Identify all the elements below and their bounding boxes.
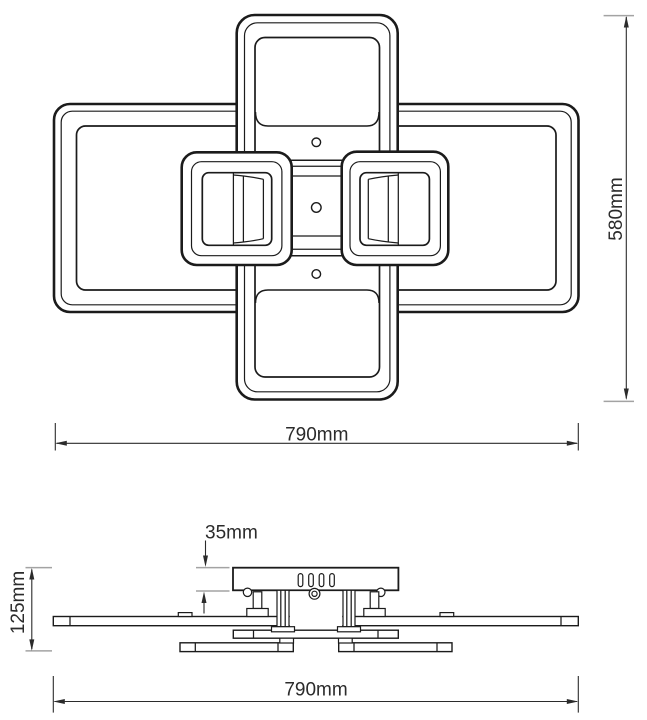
main-bar-tab-right [440, 613, 454, 617]
side-view [53, 568, 578, 652]
plate-foot-right [339, 638, 353, 643]
canopy-vent-slot [298, 574, 303, 587]
technical-drawing: 580mm 790mm 35mm 125mm 790mm [0, 0, 647, 720]
mounting-hole-center [312, 203, 322, 213]
dimension-label-overall-depth: 125mm [8, 571, 29, 634]
plate-foot-left [280, 638, 294, 643]
bolt-center-inner [312, 591, 317, 596]
bottom-bar-right [339, 643, 452, 652]
canopy-vent-slot [330, 574, 335, 587]
arrowhead-down-icon [624, 389, 629, 401]
arrowhead-left-icon [53, 699, 65, 704]
left-square-inner-edge [202, 173, 271, 246]
right-square-frame [342, 152, 449, 265]
dimension-overall-height: 580mm [604, 16, 634, 402]
left-square-frame [182, 152, 292, 265]
arrowhead-up-icon [202, 592, 207, 604]
arrowhead-right-icon [567, 441, 579, 446]
arrowhead-up-icon [29, 568, 34, 580]
mounting-hole-bottom [312, 270, 321, 279]
middle-plate [233, 630, 398, 638]
canopy-vent-slot [319, 574, 324, 587]
dimension-top-width: 790mm [55, 423, 578, 451]
mounting-hole-top [312, 138, 321, 147]
dimension-label-side-width: 790mm [284, 680, 347, 701]
bottom-bar-left [180, 643, 293, 652]
middle-plate-body [233, 630, 398, 638]
arrowhead-right-icon [567, 699, 579, 704]
dimension-label-canopy-height: 35mm [205, 523, 258, 544]
dimension-side-width: 790mm [53, 676, 578, 713]
short-post-left-stem [253, 592, 262, 609]
canopy-vent-slot [309, 574, 314, 587]
tall-post-left-stem [277, 590, 289, 626]
tall-post-right-stem [343, 590, 355, 626]
tall-post-left-foot [272, 627, 295, 632]
short-post-left-foot [247, 609, 268, 617]
short-post-right-foot [364, 609, 385, 617]
arrowhead-down-icon [29, 639, 34, 651]
drawing-canvas: 580mm 790mm 35mm 125mm 790mm [0, 0, 647, 720]
main-bar-tab-left [178, 613, 192, 617]
tall-post-right-foot [338, 627, 361, 632]
top-view [54, 15, 579, 400]
arrowhead-up-icon [624, 16, 629, 28]
dimension-overall-depth: 125mm [8, 568, 52, 651]
bottom-bars [180, 638, 452, 651]
dimension-label-top-width: 790mm [285, 425, 348, 446]
canopy-box [233, 568, 398, 591]
arrowhead-left-icon [55, 441, 67, 446]
right-square-inner-edge [360, 173, 429, 246]
bolt-left [243, 588, 251, 596]
short-post-right-stem [370, 592, 379, 609]
arrowhead-down-icon [203, 556, 208, 568]
canopy [233, 568, 398, 591]
dimension-label-overall-height: 580mm [606, 177, 627, 240]
